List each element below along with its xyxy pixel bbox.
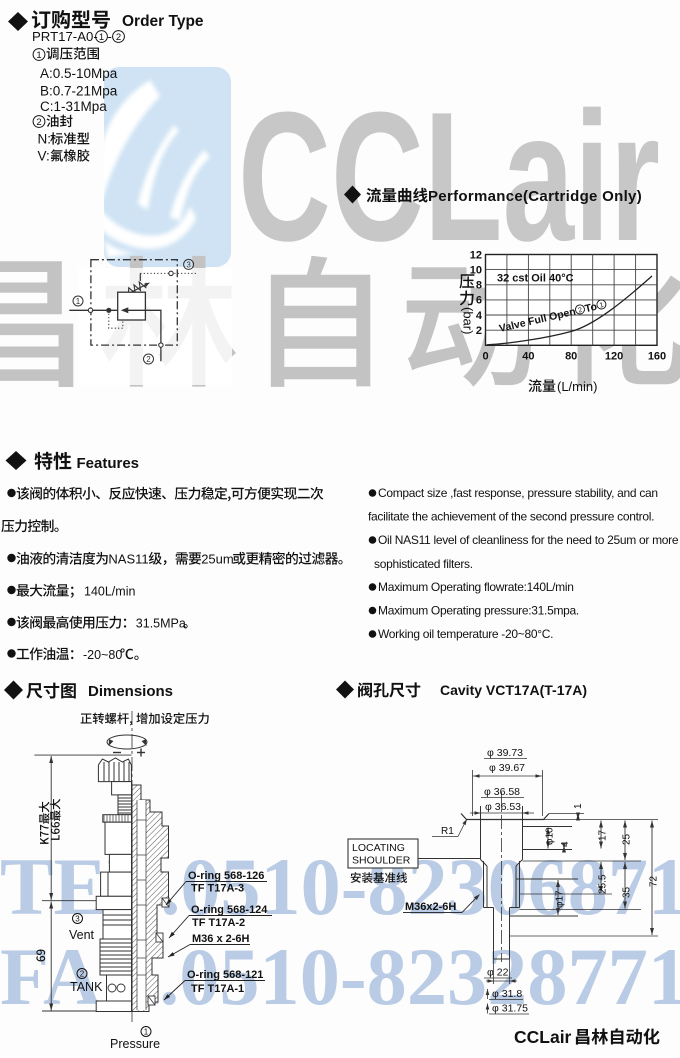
svg-text:CCLair: CCLair (238, 73, 660, 279)
svg-text:N:: N: (38, 132, 52, 147)
svg-text:6: 6 (476, 295, 482, 307)
svg-text:φ 31.8: φ 31.8 (492, 988, 522, 1000)
svg-text:1: 1 (36, 50, 41, 61)
svg-text:TF T17A-2: TF T17A-2 (192, 917, 245, 929)
svg-text:Working oil temperature -20~80: Working oil temperature -20~80°C. (378, 627, 553, 641)
svg-text:3: 3 (186, 261, 191, 270)
svg-text:CCLair: CCLair (514, 1027, 572, 1047)
svg-text:SHOULDER: SHOULDER (352, 855, 411, 867)
svg-text:Performance(Cartridge Only): Performance(Cartridge Only) (428, 188, 642, 205)
svg-text:A:0.5-10Mpa: A:0.5-10Mpa (40, 66, 118, 81)
svg-text:120: 120 (605, 351, 623, 363)
svg-text:0: 0 (482, 351, 488, 363)
svg-text:M36x2-6H: M36x2-6H (405, 901, 456, 913)
svg-text:B:0.7-21Mpa: B:0.7-21Mpa (40, 84, 118, 99)
svg-text:LOCATING: LOCATING (352, 842, 405, 854)
svg-text:12: 12 (470, 249, 482, 261)
svg-text:35: 35 (622, 886, 633, 898)
svg-text:φ 36.53: φ 36.53 (485, 801, 521, 813)
svg-text:R1: R1 (441, 826, 454, 837)
svg-text:4: 4 (476, 310, 483, 322)
svg-text:φ 31.75: φ 31.75 (492, 1003, 528, 1015)
svg-text:32 cst Oil 40°C: 32 cst Oil 40°C (497, 273, 574, 285)
svg-text:facilitate the achievement of: facilitate the achievement of the second… (368, 510, 654, 524)
svg-text:2: 2 (146, 355, 151, 364)
svg-text:140L/min: 140L/min (84, 585, 135, 599)
svg-text:Compact size ,fast response, p: Compact size ,fast response, pressure st… (378, 486, 658, 500)
svg-text:72: 72 (649, 875, 660, 887)
svg-text:(bar): (bar) (461, 307, 476, 334)
svg-text:-20~80: -20~80 (83, 648, 122, 662)
svg-text:O-ring 568-121: O-ring 568-121 (187, 969, 263, 981)
svg-text:M36 x 2-6H: M36 x 2-6H (192, 933, 250, 945)
svg-text:25um: 25um (201, 552, 234, 567)
svg-text:-: - (108, 29, 112, 44)
svg-text:Maximum Operating pressure:31: Maximum Operating pressure:31.5mpa. (378, 604, 579, 618)
svg-text:1: 1 (76, 297, 81, 306)
svg-text:31.5MPa: 31.5MPa (136, 617, 186, 631)
svg-text:C:1-31Mpa: C:1-31Mpa (40, 99, 107, 114)
svg-text:2: 2 (476, 325, 482, 337)
svg-text:17: 17 (598, 829, 609, 841)
svg-text:2: 2 (116, 32, 121, 43)
svg-text:φ10: φ10 (545, 827, 556, 845)
svg-text:TF T17A-3: TF T17A-3 (191, 883, 244, 895)
svg-text:2: 2 (36, 117, 41, 128)
svg-text:V:: V: (38, 149, 50, 164)
svg-text:PRT17-A0-: PRT17-A0- (32, 29, 98, 44)
svg-text:Vent: Vent (69, 928, 95, 942)
svg-text:sophisticated filters.: sophisticated filters. (374, 557, 473, 571)
svg-text:φ 22: φ 22 (487, 967, 509, 979)
svg-text:φ 36.58: φ 36.58 (484, 786, 520, 798)
svg-text:Oil NAS11 level of cleanliness: Oil NAS11 level of cleanliness for the n… (378, 533, 679, 547)
svg-text:φ 39.67: φ 39.67 (489, 762, 525, 774)
svg-text:25.5: 25.5 (598, 874, 609, 894)
svg-text:3: 3 (75, 915, 80, 924)
svg-text:O-ring 568-126: O-ring 568-126 (188, 870, 264, 882)
svg-text:Cavity VCT17A(T-17A): Cavity VCT17A(T-17A) (440, 682, 587, 698)
svg-text:O-ring 568-124: O-ring 568-124 (191, 904, 268, 916)
svg-text:Pressure: Pressure (110, 1037, 160, 1051)
svg-text:1: 1 (144, 1028, 149, 1037)
svg-text:25: 25 (622, 833, 633, 845)
svg-text:80: 80 (565, 351, 577, 363)
svg-text:160: 160 (648, 351, 666, 363)
svg-text:40: 40 (522, 351, 534, 363)
svg-text:φ 39.73: φ 39.73 (487, 747, 523, 759)
svg-text:Maximum Operating flowrate:140: Maximum Operating flowrate:140L/min (378, 580, 574, 594)
svg-text:(L/min): (L/min) (557, 379, 597, 394)
svg-text:1: 1 (573, 803, 584, 809)
svg-text:1: 1 (99, 32, 104, 43)
svg-text:TANK: TANK (70, 980, 103, 994)
svg-text:Order Type: Order Type (122, 13, 204, 30)
svg-text:Dimensions: Dimensions (88, 683, 173, 700)
svg-text:2: 2 (80, 970, 85, 979)
svg-text:TF T17A-1: TF T17A-1 (191, 983, 244, 995)
svg-text:φ17: φ17 (555, 890, 566, 908)
svg-text:NAS11: NAS11 (108, 552, 148, 567)
svg-text:Features: Features (77, 455, 140, 472)
svg-text:8: 8 (476, 280, 482, 292)
